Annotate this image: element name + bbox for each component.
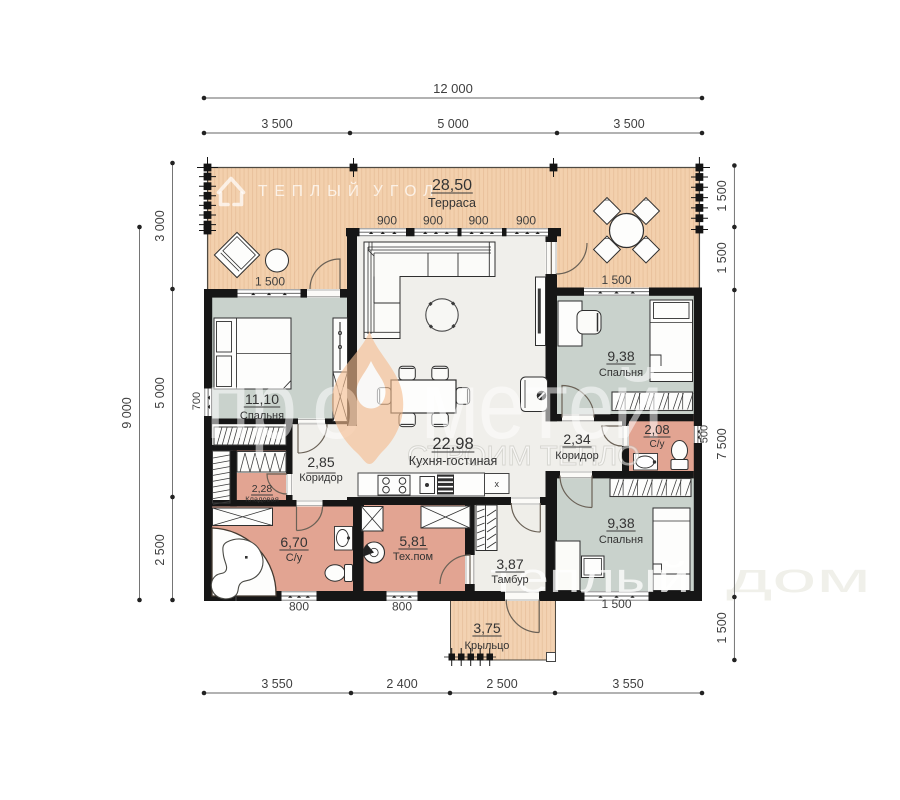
svg-text:Кухня-гостиная: Кухня-гостиная — [409, 454, 497, 468]
svg-text:Спальня: Спальня — [599, 367, 643, 379]
svg-text:3 500: 3 500 — [261, 117, 292, 131]
svg-text:1 500: 1 500 — [715, 180, 729, 211]
svg-text:3 000: 3 000 — [153, 210, 167, 241]
svg-text:С/у: С/у — [286, 552, 303, 564]
svg-text:1 500: 1 500 — [715, 242, 729, 273]
svg-text:Коридор: Коридор — [555, 450, 598, 462]
svg-text:900: 900 — [516, 214, 536, 228]
svg-text:2,28: 2,28 — [252, 483, 273, 495]
svg-text:Тех.пом: Тех.пом — [393, 551, 433, 563]
svg-text:5 000: 5 000 — [437, 117, 468, 131]
svg-text:С/у: С/у — [650, 439, 665, 450]
svg-text:5 000: 5 000 — [153, 377, 167, 408]
svg-text:6,70: 6,70 — [280, 534, 307, 550]
svg-text:9 000: 9 000 — [120, 397, 134, 428]
svg-text:2 500: 2 500 — [153, 534, 167, 565]
svg-text:9,38: 9,38 — [607, 348, 634, 364]
svg-text:Тамбур: Тамбур — [491, 574, 528, 586]
svg-text:1 500: 1 500 — [715, 612, 729, 643]
svg-text:3 550: 3 550 — [261, 677, 292, 691]
svg-text:900: 900 — [423, 214, 443, 228]
svg-text:500: 500 — [699, 425, 711, 443]
svg-text:7 500: 7 500 — [715, 428, 729, 459]
svg-text:3,87: 3,87 — [496, 556, 523, 572]
svg-text:28,50: 28,50 — [432, 177, 472, 194]
svg-text:Спальня: Спальня — [240, 410, 284, 422]
svg-text:1 500: 1 500 — [601, 597, 631, 611]
svg-text:9,38: 9,38 — [607, 515, 634, 531]
svg-text:ТЕПЛЫЙ: ТЕПЛЫЙ — [258, 182, 366, 200]
svg-text:Коридор: Коридор — [299, 472, 342, 484]
svg-text:1 500: 1 500 — [255, 275, 285, 289]
svg-text:900: 900 — [377, 214, 397, 228]
svg-text:Спальня: Спальня — [599, 534, 643, 546]
svg-text:12 000: 12 000 — [433, 81, 473, 96]
svg-text:3 500: 3 500 — [613, 117, 644, 131]
svg-text:5,81: 5,81 — [399, 533, 426, 549]
svg-text:x: x — [494, 479, 499, 489]
svg-text:800: 800 — [289, 600, 309, 614]
svg-text:3 550: 3 550 — [612, 677, 643, 691]
svg-text:Терраса: Терраса — [428, 196, 476, 210]
svg-text:1 500: 1 500 — [601, 273, 631, 287]
svg-text:900: 900 — [468, 214, 488, 228]
svg-text:Кладовая: Кладовая — [245, 495, 279, 504]
svg-text:2 500: 2 500 — [486, 677, 517, 691]
svg-text:п: п — [206, 352, 250, 459]
svg-text:2,08: 2,08 — [644, 422, 669, 437]
svg-text:2,34: 2,34 — [563, 431, 590, 447]
svg-text:22,98: 22,98 — [432, 435, 473, 453]
svg-text:11,10: 11,10 — [245, 391, 279, 407]
svg-text:800: 800 — [392, 600, 412, 614]
svg-text:дом: дом — [726, 554, 871, 601]
svg-text:700: 700 — [191, 392, 203, 410]
svg-text:Крыльцо: Крыльцо — [465, 640, 510, 652]
svg-text:2,85: 2,85 — [307, 454, 334, 470]
svg-text:3,75: 3,75 — [473, 620, 500, 636]
svg-text:2 400: 2 400 — [386, 677, 417, 691]
